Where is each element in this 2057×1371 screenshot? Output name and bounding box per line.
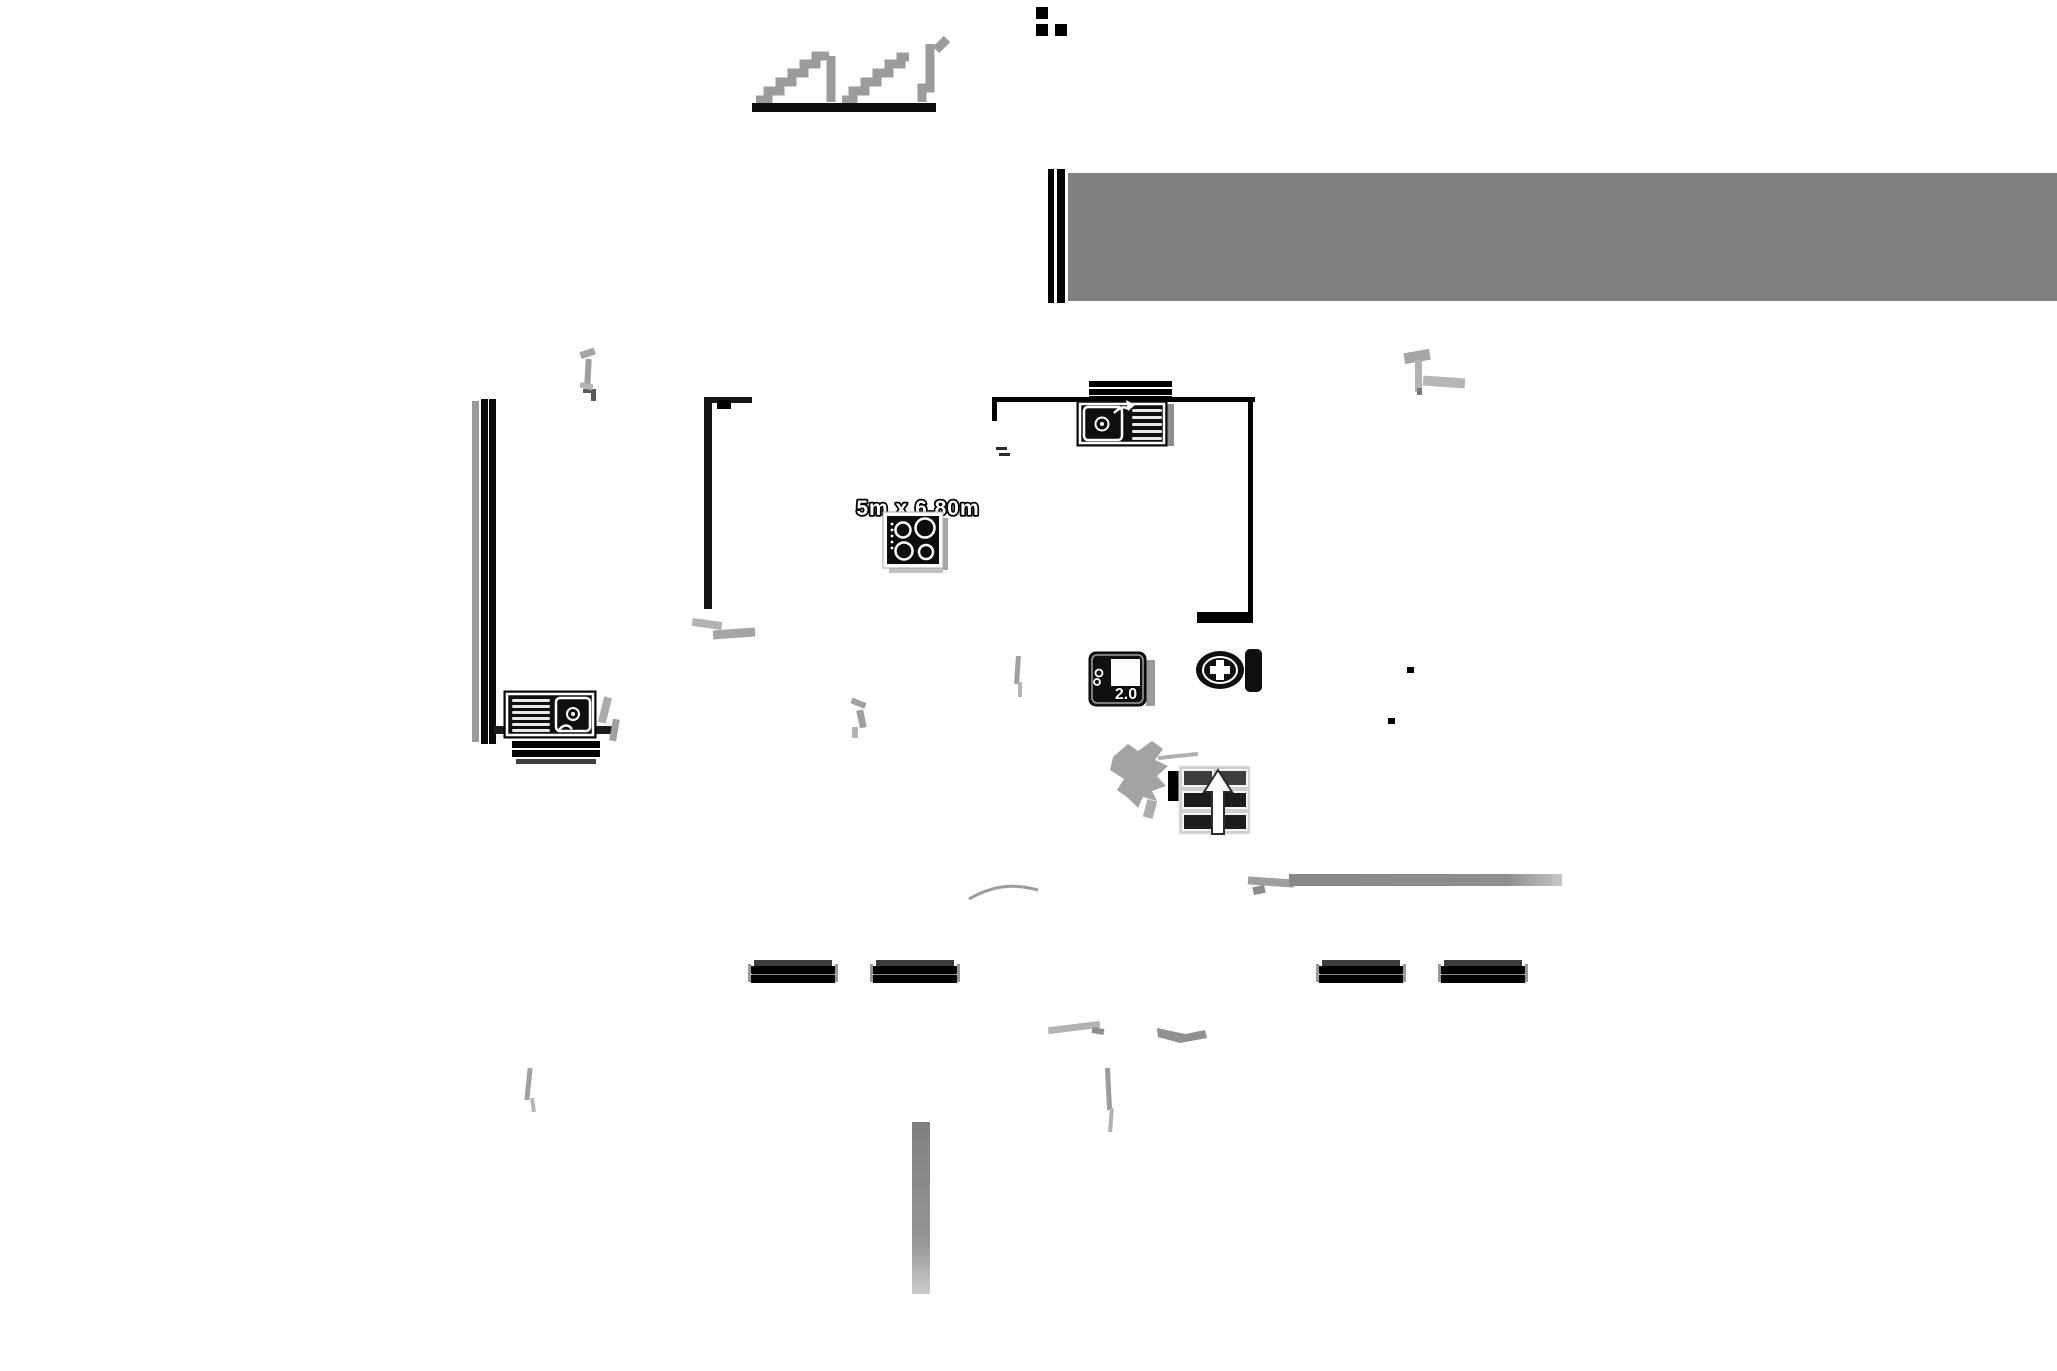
stove-cooktop <box>883 512 948 573</box>
hinge-icon <box>1094 679 1100 685</box>
kitchen-sink-left <box>494 691 612 764</box>
kitchen-sink-top <box>1077 400 1174 446</box>
floor-plan-canvas: 5m x 6.80m 2.0 <box>0 0 2057 1371</box>
smudge-artifacts <box>524 348 1414 1132</box>
step-bars <box>748 960 1528 983</box>
dot-mark <box>1407 667 1414 673</box>
step-bar <box>870 960 960 983</box>
menu-dots-glyph <box>1036 7 1067 36</box>
toilet-tank <box>1245 649 1262 692</box>
step-bar <box>1316 960 1406 983</box>
wall-right <box>1248 397 1253 623</box>
step-bar <box>1438 960 1528 983</box>
door-swing-arc <box>969 886 1038 899</box>
smudge-bottom-middle <box>1048 1021 1207 1043</box>
wall-bottom-segment <box>1197 612 1253 623</box>
gradient-bar-right <box>1248 874 1562 895</box>
step-bar <box>748 960 838 983</box>
hatch-mark <box>996 447 1007 450</box>
floor-plan-drawing: 5m x 6.80m 2.0 <box>0 0 2057 1371</box>
cabinet-grid-with-arrow <box>1168 766 1250 834</box>
toilet <box>1196 649 1262 692</box>
banner-bar <box>1048 169 2057 303</box>
exterior-wall-left <box>472 399 496 744</box>
interior-wall-l <box>704 397 752 609</box>
hatch-mark <box>999 453 1010 456</box>
stair-profile-glyph <box>752 39 947 112</box>
gradient-bar-bottom <box>912 1122 930 1294</box>
smudge-below-wall <box>692 618 756 640</box>
door-symbol: 2.0 <box>1089 652 1155 706</box>
sink-base-bars <box>512 741 600 764</box>
door-width-label: 2.0 <box>1115 686 1137 703</box>
smudge-glyph-upper-right <box>1403 349 1465 395</box>
wall-corner-tick <box>583 389 596 401</box>
banner-gray-panel <box>1068 173 2057 301</box>
dot-mark <box>1388 718 1395 724</box>
wall-left-tick <box>992 397 997 421</box>
door-leaf <box>1111 659 1140 686</box>
banner-edge-bar-1 <box>1048 169 1054 303</box>
banner-edge-bar-2 <box>1057 169 1065 303</box>
hinge-icon <box>1096 670 1103 677</box>
window-top <box>1089 381 1172 401</box>
